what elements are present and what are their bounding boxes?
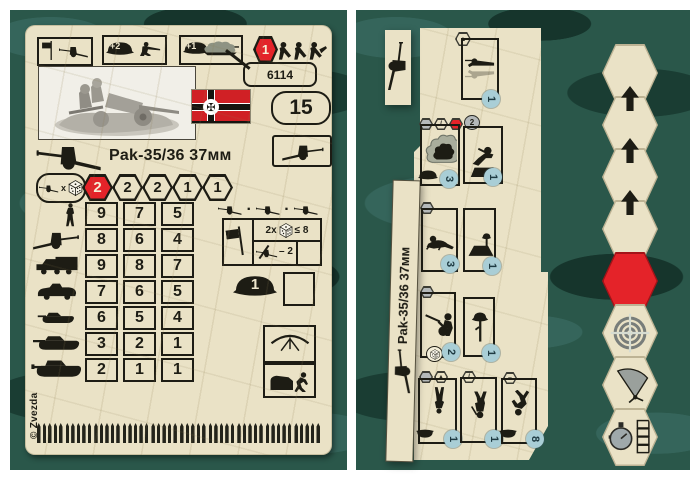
move-circle: 1 [482, 344, 500, 362]
product-code: 6114 [243, 62, 317, 87]
gun-icon [39, 184, 59, 193]
morale-roll: 2x [266, 225, 277, 236]
ammo-group [151, 423, 177, 445]
strength-helmet: 1 [233, 272, 277, 302]
stat-cell: 3 [85, 332, 118, 356]
stat-cell: 5 [161, 202, 194, 226]
timer-hex [602, 408, 658, 466]
stat-cell: 6 [123, 228, 156, 252]
ammo-strip [37, 423, 320, 445]
move-circle: 2 [442, 343, 460, 361]
helmet-icon [499, 428, 517, 440]
entrench-bonus-box: +2 [102, 35, 167, 65]
bunker-runner-icon [269, 370, 311, 392]
unit-stat-card: +2 +1 1 6114 [25, 25, 332, 455]
stat-cell: 6 [85, 306, 118, 330]
standing-soldier-icon [433, 386, 445, 414]
stat-cell: 2 [123, 332, 156, 356]
ammo-group [266, 423, 292, 445]
bullet-icon [59, 423, 63, 443]
move-circle: 1 [483, 257, 501, 275]
anti-tank-gun-icon [31, 230, 79, 250]
bullet-icon [191, 423, 195, 443]
medium-tank-icon [33, 334, 81, 352]
reflection-icon [465, 69, 497, 81]
bullet-icon [248, 423, 252, 443]
stat-cell: 4 [161, 306, 194, 330]
gun-icon [59, 45, 89, 58]
move-circle: 3 [441, 255, 459, 273]
landing-assault-box [263, 363, 316, 398]
bullet-icon [94, 423, 98, 443]
attack-hex-4: 1 [172, 174, 203, 201]
bullet-icon [128, 423, 132, 443]
ammo-group [209, 423, 235, 445]
bullet-icon [145, 423, 149, 443]
bullet-icon [209, 423, 213, 443]
bullet-icon [277, 423, 281, 443]
gun-icon [392, 349, 412, 395]
unit-title: Pak-35/36 37мм [109, 147, 232, 165]
stat-cell: 6 [123, 280, 156, 304]
bullet-icon [54, 423, 58, 443]
ammo-group [294, 423, 320, 445]
bullet-icon [243, 423, 247, 443]
bullet-icon [316, 423, 320, 443]
smoke-icon [425, 132, 457, 168]
attack-value: 2 [85, 177, 111, 199]
pak-gun-model-image [39, 67, 194, 138]
iron-cross-roundel: ✠ [203, 99, 219, 115]
attack-value: 2 [145, 177, 171, 199]
bullet-icon [162, 423, 166, 443]
bullet-icon [311, 423, 315, 443]
crew-pushing-icon [277, 38, 327, 62]
bullet-icon [37, 423, 41, 443]
stat-cell: 7 [85, 280, 118, 304]
bullet-icon [139, 423, 143, 443]
alert-hex-red [602, 252, 658, 310]
gun-icon [294, 204, 318, 216]
bullet-icon [157, 423, 161, 443]
stat-cell: 4 [161, 228, 194, 252]
bullet-icon [66, 423, 70, 443]
stat-cell: 7 [161, 254, 194, 278]
gun-loss-value: – 2 [279, 246, 293, 257]
attack-value: 1 [205, 177, 231, 199]
morale-check-box: 2x ≤ 8 – 2 [222, 218, 322, 266]
entrench-bonus-value: +2 [110, 41, 120, 51]
camouflage-bonus-value: +1 [186, 41, 196, 51]
attack-hex-3: 2 [142, 174, 173, 201]
bullet-icon [237, 423, 241, 443]
morale-check: ≤ 8 [295, 225, 309, 236]
bullet-icon [100, 423, 104, 443]
bullet-icon [288, 423, 292, 443]
attack-value: 2 [115, 177, 141, 199]
ammo-group [37, 423, 63, 445]
flag-icon [225, 223, 253, 258]
dice-icon [430, 349, 440, 360]
bullet-icon [197, 423, 201, 443]
bullet-icon [77, 423, 81, 443]
morale-flag-cell [224, 220, 254, 264]
bullet-icon [123, 423, 127, 443]
bullet-icon [111, 423, 115, 443]
rifle-helmet-icon [470, 309, 490, 345]
attack-multiplier: x [61, 183, 66, 193]
bullet-icon [231, 423, 235, 443]
ammo-group [123, 423, 149, 445]
bullet-icon [88, 423, 92, 443]
flag-cross-horizontal [192, 104, 250, 110]
move-cost-hex: 1 [253, 36, 278, 63]
bullet-icon [134, 423, 138, 443]
gun-silhouette-box [272, 135, 332, 167]
stat-cell: 2 [85, 358, 118, 382]
bullet-icon [151, 423, 155, 443]
ammo-group [94, 423, 120, 445]
gun-icon [256, 204, 280, 216]
attack-hex-2: 2 [112, 174, 143, 201]
deploy-marker-box [37, 37, 93, 66]
glider-transport-box [263, 325, 316, 363]
points-value: 15 [271, 91, 331, 125]
helmet-icon [416, 428, 434, 440]
camo-background-right: Pak-35/36 37мм ▲ 1 / 3 2 1 3 1 2 [356, 10, 690, 470]
stopwatch-icon [607, 418, 653, 456]
ammo-group [180, 423, 206, 445]
stat-cell: 1 [161, 358, 194, 382]
dice-badge [426, 346, 443, 362]
bullet-icon [105, 423, 109, 443]
unit-title-vertical: Pak-35/36 37мм [395, 247, 413, 345]
bullet-icon [305, 423, 309, 443]
camouflage-bonus-box: +1 [179, 35, 243, 65]
stat-cell: 8 [123, 254, 156, 278]
dice-icon [279, 223, 293, 238]
flag-icon [42, 41, 58, 60]
walking-soldier-icon [470, 389, 490, 419]
gun-icon [218, 204, 242, 216]
arrow-up-icon [621, 86, 639, 111]
fire-arc-hex [602, 356, 658, 414]
arrow-up-icon [621, 138, 639, 163]
ammo-group [66, 423, 92, 445]
gunner-firing-icon [424, 308, 456, 340]
gun-icon [280, 143, 324, 161]
bullet-icon [271, 423, 275, 443]
armored-car-icon [35, 282, 79, 300]
move-circle: 8 [526, 430, 544, 448]
entrenchment-icon [467, 230, 495, 260]
bullet-icon [71, 423, 75, 443]
stat-cell: 9 [85, 202, 118, 226]
bullet-icon [220, 423, 224, 443]
bullet-icon [300, 423, 304, 443]
bullet-icon [202, 423, 206, 443]
gun-icon [387, 42, 409, 92]
firing-soldier-icon [134, 41, 162, 56]
bullet-icon [254, 423, 258, 443]
move-cost-value: 1 [256, 39, 276, 61]
bullet-icon [48, 423, 52, 443]
move-circle: 1 [484, 168, 502, 186]
bullet-icon [116, 423, 120, 443]
gun-icon [35, 143, 105, 171]
german-war-flag: ✠ [192, 90, 250, 123]
bullet-icon [43, 423, 47, 443]
status-slot-box [283, 272, 315, 306]
bullet-icon [180, 423, 184, 443]
bullet-icon [225, 423, 229, 443]
truck-icon [35, 255, 79, 275]
flag-border-stripe [192, 121, 250, 124]
stat-cell: 5 [123, 306, 156, 330]
gun-loss-cell: – 2 [254, 242, 298, 264]
bullet-icon [186, 423, 190, 443]
infantry-icon [65, 203, 76, 227]
stat-cell: 1 [123, 358, 156, 382]
bullet-icon [168, 423, 172, 443]
target-icon [609, 312, 651, 354]
bullet-icon [173, 423, 177, 443]
bullet-icon [294, 423, 298, 443]
arrow-up-icon [621, 190, 639, 215]
fire-arc-icon [609, 365, 651, 405]
glider-icon [270, 332, 310, 356]
attack-dice-pill: x [36, 173, 86, 203]
gun-tab [385, 30, 411, 105]
stat-cell: 7 [123, 202, 156, 226]
attack-hex-1: 2 [82, 174, 113, 201]
dice-icon [68, 180, 83, 196]
light-tank-icon [35, 309, 79, 326]
bullet-icon [282, 423, 286, 443]
stat-cell: 5 [161, 280, 194, 304]
running-soldier-icon [510, 390, 530, 416]
attack-hex-5: 1 [202, 174, 233, 201]
crawling-soldier-icon [425, 234, 457, 252]
move-circle: 1 [482, 90, 500, 108]
strength-value: 1 [233, 276, 277, 293]
bullet-icon [259, 423, 263, 443]
gun-march-row: · · [218, 203, 318, 217]
bullet-icon [82, 423, 86, 443]
bullet-icon [214, 423, 218, 443]
stat-cell: 8 [85, 228, 118, 252]
model-photo [38, 66, 196, 140]
camo-background-left: +2 +1 1 6114 [10, 10, 347, 470]
move-circle: 3 [440, 170, 458, 188]
target-hex [602, 304, 658, 362]
stat-cell: 1 [161, 332, 194, 356]
ammo-group [237, 423, 263, 445]
stat-cell: 9 [85, 254, 118, 278]
morale-roll-cell: 2x ≤ 8 [254, 220, 320, 242]
prone-soldier-icon [465, 56, 497, 68]
bullet-icon [266, 423, 270, 443]
helmet-icon [418, 168, 438, 181]
attack-value: 1 [175, 177, 201, 199]
